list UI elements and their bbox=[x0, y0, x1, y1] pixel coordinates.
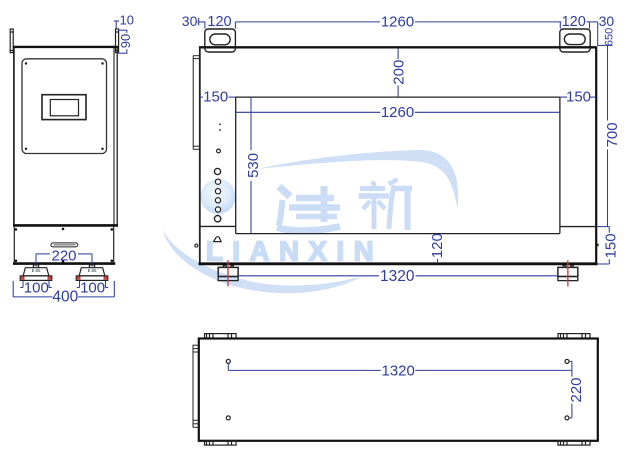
svg-text:10: 10 bbox=[120, 13, 134, 28]
svg-text:100: 100 bbox=[24, 279, 49, 296]
svg-text:200: 200 bbox=[391, 60, 408, 85]
svg-text:E-65: E-65 bbox=[88, 268, 98, 273]
svg-text:400: 400 bbox=[52, 289, 78, 306]
svg-text:LIANXIN: LIANXIN bbox=[206, 236, 383, 267]
svg-text:650: 650 bbox=[604, 28, 616, 46]
svg-text:530: 530 bbox=[245, 153, 262, 178]
svg-text:220: 220 bbox=[568, 377, 585, 402]
svg-text:100: 100 bbox=[80, 279, 105, 296]
svg-text:30: 30 bbox=[182, 13, 198, 29]
svg-text:120: 120 bbox=[207, 14, 231, 30]
svg-text:1260: 1260 bbox=[381, 104, 414, 121]
svg-text:1320: 1320 bbox=[380, 268, 415, 285]
svg-text:1320: 1320 bbox=[382, 362, 415, 379]
svg-text:220: 220 bbox=[51, 248, 76, 265]
svg-text:90: 90 bbox=[118, 34, 133, 48]
svg-text:30: 30 bbox=[599, 13, 615, 29]
svg-text:150: 150 bbox=[566, 89, 591, 106]
svg-text:1260: 1260 bbox=[381, 13, 414, 30]
svg-text:E-65: E-65 bbox=[32, 268, 42, 273]
svg-text:120: 120 bbox=[562, 14, 586, 30]
svg-text:150: 150 bbox=[603, 233, 620, 258]
svg-text:120: 120 bbox=[429, 233, 446, 258]
svg-text:700: 700 bbox=[604, 122, 621, 147]
svg-text:150: 150 bbox=[203, 89, 228, 106]
